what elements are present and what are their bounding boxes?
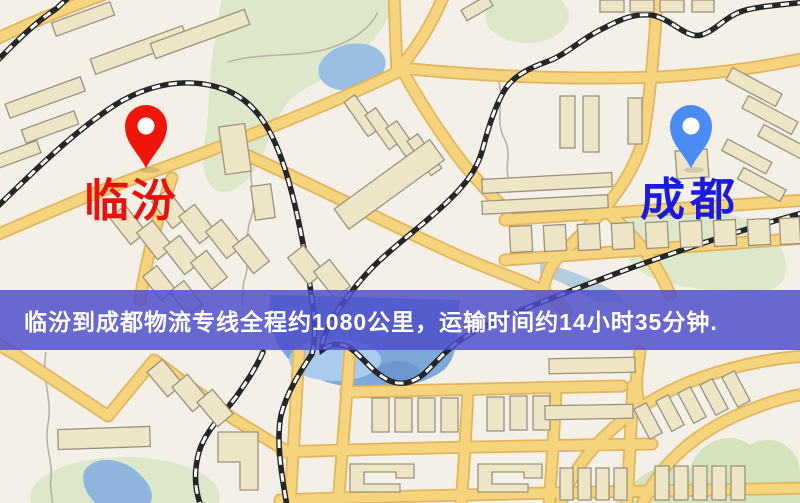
route-banner: 临汾到成都物流专线全程约1080公里，运输时间约14小时35分钟. <box>0 290 800 350</box>
origin-city-label: 临汾 <box>84 178 178 223</box>
map-canvas <box>0 0 800 503</box>
destination-city-label: 成都 <box>640 177 740 222</box>
logistics-map-screenshot: 临汾 成都 临汾到成都物流专线全程约1080公里，运输时间约14小时35分钟. <box>0 0 800 503</box>
route-banner-text: 临汾到成都物流专线全程约1080公里，运输时间约14小时35分钟. <box>0 303 718 337</box>
